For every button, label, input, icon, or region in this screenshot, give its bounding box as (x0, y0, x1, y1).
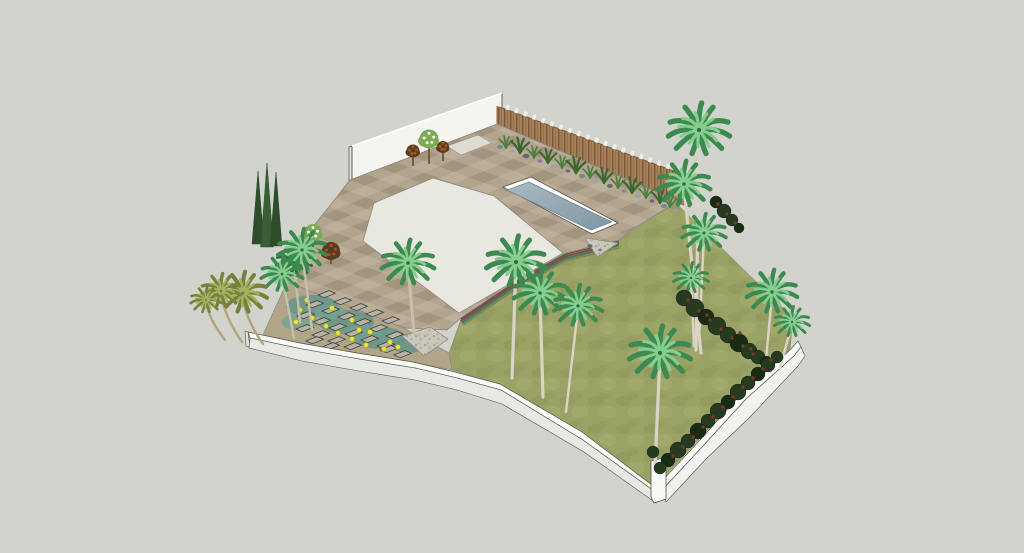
hedge-red-bloom (716, 202, 719, 205)
hedge-red-bloom (686, 298, 689, 301)
viewport-3d[interactable]: Aerial 3D render of a residential garden… (0, 0, 1024, 553)
hedge-red-bloom (769, 358, 772, 361)
hedge-red-bloom (738, 331, 741, 334)
boulder (587, 244, 592, 247)
yellow-flower (350, 318, 355, 323)
boulder (497, 145, 503, 149)
yellow-flower (364, 343, 369, 348)
yellow-flower (396, 345, 401, 350)
hedge-red-bloom (741, 385, 744, 388)
boulder (579, 174, 585, 178)
hedge-red-bloom (761, 367, 764, 370)
hedge-red-bloom (721, 405, 724, 408)
hedge-red-bloom (705, 313, 708, 316)
hedge-red-bloom (730, 336, 733, 339)
hedge-red-bloom (711, 415, 714, 418)
hedge-red-bloom (751, 376, 754, 379)
yellow-flower (357, 328, 362, 333)
hedge-red-bloom (731, 395, 734, 398)
boulder (510, 150, 514, 153)
boulder (607, 184, 613, 188)
yellow-flower (368, 330, 373, 335)
yellow-flower (382, 347, 387, 352)
hedge-clump (647, 446, 659, 458)
hedge-red-bloom (708, 318, 711, 321)
yellow-flower (330, 306, 335, 311)
hedge-red-bloom (697, 309, 700, 312)
boulder (622, 190, 626, 193)
yellow-flower (350, 337, 355, 342)
hedge-red-bloom (751, 352, 754, 355)
hedge-red-bloom (701, 425, 704, 428)
hedge-red-bloom (749, 347, 752, 350)
boulder (661, 204, 667, 208)
boulder (674, 209, 678, 212)
boulder (538, 159, 543, 162)
hedge-red-bloom (733, 221, 736, 224)
yellow-flower (336, 331, 341, 336)
yellow-flower (294, 320, 299, 325)
garden-render (0, 0, 1024, 553)
boulder (598, 249, 602, 252)
boulder (635, 194, 642, 198)
hedge-red-bloom (719, 327, 722, 330)
hedge-red-bloom (681, 445, 684, 448)
boulder (650, 199, 655, 202)
boulder (566, 170, 570, 173)
hedge-red-bloom (725, 212, 728, 215)
boulder (523, 154, 530, 158)
hedge-red-bloom (741, 344, 744, 347)
hedge-red-bloom (671, 454, 674, 457)
boulder (551, 164, 557, 168)
hedge-clump (654, 462, 666, 474)
hedge-red-bloom (691, 435, 694, 438)
yellow-flower (324, 324, 329, 329)
boulder (594, 179, 599, 182)
yellow-flower (388, 340, 393, 345)
